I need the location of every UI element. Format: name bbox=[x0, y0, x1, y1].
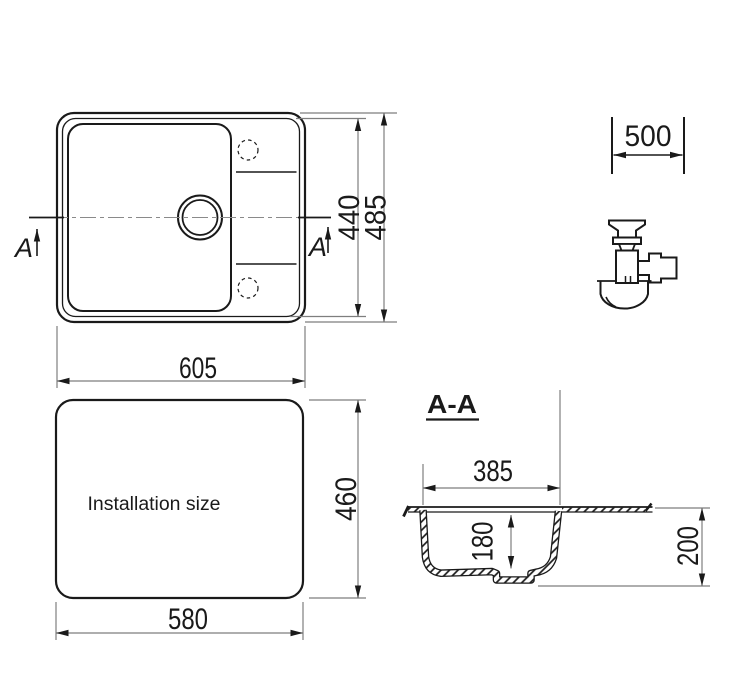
siphon-bowl bbox=[601, 281, 649, 309]
dim-value-485: 485 bbox=[360, 195, 393, 241]
dim-value-460: 460 bbox=[330, 477, 363, 521]
siphon-icon bbox=[597, 221, 677, 309]
siphon-funnel bbox=[609, 221, 645, 238]
sink-technical-drawing: A A 605 440 485 500 bbox=[0, 0, 747, 676]
dim-overall-height-200: 200 bbox=[538, 508, 710, 586]
dim-value-580: 580 bbox=[168, 603, 208, 636]
section-title: A-A bbox=[427, 389, 477, 419]
installation-view: Installation size bbox=[56, 400, 303, 598]
sink-top-view: A A bbox=[13, 113, 331, 322]
dim-cabinet-width-500: 500 bbox=[612, 117, 684, 174]
dim-value-605: 605 bbox=[179, 352, 217, 385]
dim-installation-depth-460: 460 bbox=[309, 400, 366, 598]
dim-sink-width-605: 605 bbox=[57, 326, 305, 388]
siphon-body bbox=[616, 251, 638, 284]
section-profile bbox=[404, 504, 653, 581]
siphon-collar bbox=[613, 238, 641, 245]
dim-value-200: 200 bbox=[672, 526, 705, 566]
technical-drawing-page: A A 605 440 485 500 bbox=[0, 0, 747, 676]
dim-value-500: 500 bbox=[625, 120, 672, 153]
rim-hatch-right bbox=[562, 508, 645, 512]
installation-label: Installation size bbox=[88, 494, 221, 515]
dim-value-385: 385 bbox=[473, 455, 513, 488]
section-view: A-A 385 180 2 bbox=[404, 389, 711, 586]
dim-value-180: 180 bbox=[467, 522, 500, 562]
section-label-left: A bbox=[13, 233, 33, 263]
rim-left-flange bbox=[404, 506, 409, 517]
tap-hole-bottom-icon bbox=[238, 278, 258, 298]
dim-installation-width-580: 580 bbox=[56, 602, 303, 640]
siphon-outlet-pipe bbox=[638, 254, 677, 283]
dim-bowl-depth-180: 180 bbox=[467, 515, 512, 569]
tap-hole-top-icon bbox=[238, 140, 258, 160]
section-label-right: A bbox=[307, 232, 327, 262]
